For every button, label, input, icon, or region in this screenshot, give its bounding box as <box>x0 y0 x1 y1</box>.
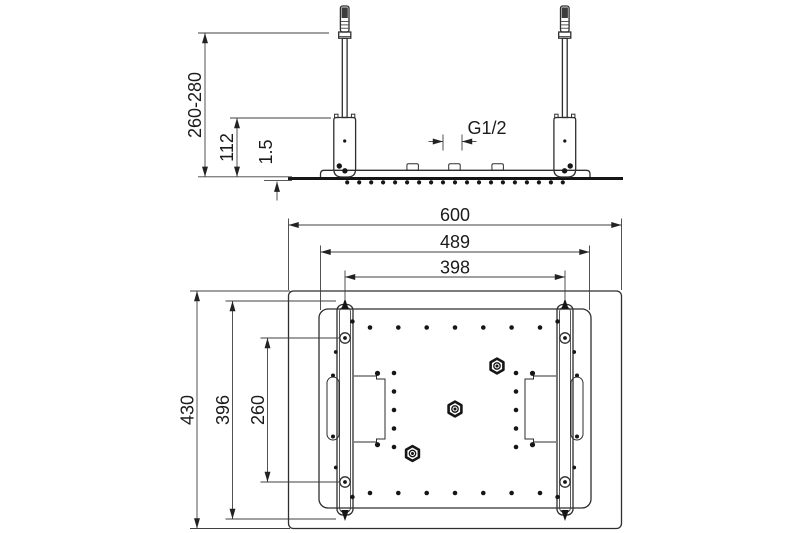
suspension-rod-left <box>334 6 356 177</box>
dim-label-overall-depth: 430 <box>178 395 198 425</box>
dim-panel-thickness: 1.5 <box>256 139 292 200</box>
nozzle-row <box>345 180 565 184</box>
service-cutout-left <box>354 371 385 448</box>
dim-label-overall-width: 600 <box>440 205 470 225</box>
hex-bolt <box>449 402 462 417</box>
dim-thread-size: G1/2 <box>429 118 507 151</box>
dim-label-hole-spacing: 260 <box>248 395 268 425</box>
panel-edge-profile <box>321 170 591 177</box>
hex-bolt <box>406 446 419 461</box>
plan-view: 600 489 398 430 396 <box>178 205 622 529</box>
service-cutout-right <box>525 371 556 448</box>
hex-bolts <box>406 359 503 461</box>
mounting-rail-left <box>327 299 355 522</box>
hex-bolt <box>491 359 504 374</box>
dim-label-panel-width: 489 <box>440 232 470 252</box>
dim-label-panel-thickness: 1.5 <box>256 139 276 164</box>
dim-overall-depth: 430 <box>178 291 291 529</box>
dim-label-thread-size: G1/2 <box>467 118 506 138</box>
dim-bracket-height: 112 <box>217 118 237 177</box>
ceiling-frame-line <box>288 177 623 180</box>
dim-label-rail-spacing: 398 <box>440 258 470 278</box>
dim-label-rail-length: 396 <box>213 395 233 425</box>
suspension-rod-right <box>554 6 576 177</box>
inlet-bosses <box>407 164 504 171</box>
dim-label-bracket-height: 112 <box>217 133 237 162</box>
dim-rail-spacing: 398 <box>345 258 565 300</box>
dim-hole-spacing: 260 <box>248 338 339 482</box>
technical-drawing: 260-280 112 1.5 G1/2 <box>0 0 800 533</box>
mounting-rail-right <box>555 299 583 522</box>
dim-rail-length: 396 <box>213 301 336 519</box>
side-view: 260-280 112 1.5 G1/2 <box>185 6 623 201</box>
dim-label-mounting-height: 260-280 <box>185 72 205 138</box>
drawing-canvas: 260-280 112 1.5 G1/2 <box>0 0 800 533</box>
